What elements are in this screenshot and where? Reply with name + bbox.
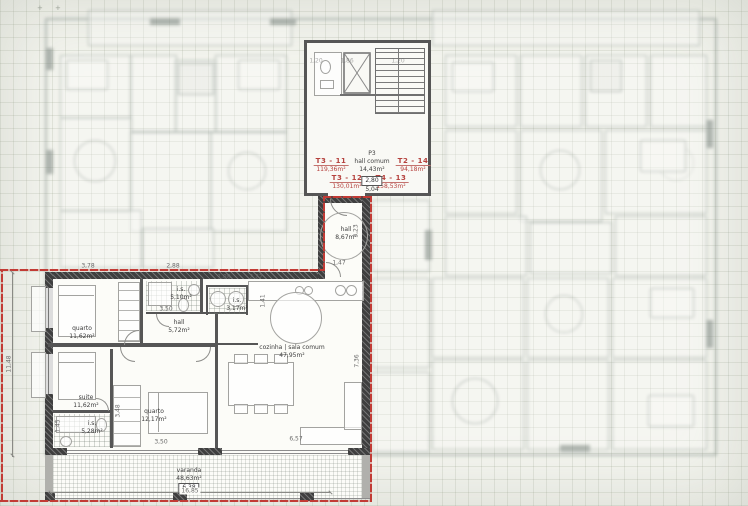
room-label-is-3: i.s. 5,28m² bbox=[81, 420, 103, 436]
unit-boundary-left bbox=[1, 269, 3, 502]
room-name: varanda bbox=[176, 467, 201, 475]
dimension-label: 1,86 bbox=[340, 58, 353, 65]
dimension-label: 2,27 bbox=[249, 274, 262, 281]
dimension-label: 1,41 bbox=[260, 294, 267, 307]
sink-icon bbox=[320, 80, 334, 89]
dimension-label: 1,88 bbox=[217, 274, 230, 281]
room-name: i.s. bbox=[226, 297, 248, 305]
sink-icon bbox=[335, 285, 346, 296]
dimension-label: 3,50 bbox=[154, 439, 167, 446]
window-sill bbox=[31, 286, 46, 332]
room-label-hall: hall 5,72m² bbox=[168, 319, 190, 335]
room-area: 11,62m² bbox=[73, 402, 98, 410]
common-hall-name: hall comum bbox=[354, 158, 389, 166]
common-hall-area: 14,43m² bbox=[354, 166, 389, 174]
dimension-label: 3,50 bbox=[159, 306, 172, 313]
dining-table-icon bbox=[228, 362, 294, 406]
room-label-is-1: i.s. 5,10m² bbox=[170, 286, 192, 302]
chair-icon bbox=[234, 404, 248, 414]
chair-icon bbox=[274, 404, 288, 414]
sofa-icon bbox=[344, 382, 362, 430]
room-area: 47,95m² bbox=[259, 352, 324, 360]
unit-boundary-step bbox=[323, 196, 325, 271]
room-name: suite bbox=[73, 394, 98, 402]
unit-area: 94,18m² bbox=[396, 166, 431, 173]
washing-machine-icon bbox=[210, 291, 226, 307]
unit-boundary-top bbox=[0, 269, 325, 271]
round-table-icon bbox=[270, 292, 322, 344]
floorplan-canvas: + + bbox=[0, 0, 748, 506]
room-area: 48,63m² bbox=[176, 475, 201, 483]
window-sill bbox=[31, 352, 46, 398]
dimension-label: 3,23 bbox=[353, 224, 360, 237]
dimension-label: 1,20 bbox=[309, 58, 322, 65]
level-marker: 2,80 bbox=[361, 176, 382, 186]
room-name: i.s. bbox=[81, 420, 103, 428]
unit-area: 130,01m² bbox=[330, 183, 365, 190]
sink-icon bbox=[60, 436, 72, 447]
room-area: 5,10m² bbox=[170, 294, 192, 302]
balcony-floor bbox=[45, 455, 370, 500]
unit-area: 119,36m² bbox=[314, 166, 349, 173]
dimension-label: 1,45 bbox=[55, 419, 62, 432]
dimension-label: 6,57 bbox=[289, 436, 302, 443]
room-area: 11,62m² bbox=[69, 333, 94, 341]
common-hall-label: P3 hall comum 14,43m² bbox=[354, 150, 389, 173]
dimension-label: 11,48 bbox=[6, 355, 13, 372]
unit-tag-t3-11: T3 - 11 119,36m² bbox=[314, 157, 349, 173]
unit-boundary-step-top bbox=[323, 196, 372, 198]
room-label-quarto-2: quarto 12,17m² bbox=[141, 408, 166, 424]
common-hall-id: P3 bbox=[354, 150, 389, 158]
room-label-living: cozinha | sala comum 47,95m² bbox=[259, 344, 324, 360]
unit-boundary-right bbox=[370, 196, 372, 502]
room-name: quarto bbox=[141, 408, 166, 416]
room-area: 5,28m² bbox=[81, 428, 103, 436]
chair-icon bbox=[234, 354, 248, 364]
dimension-label: 1,47 bbox=[332, 260, 345, 267]
common-hall-dim: 5,04 bbox=[361, 186, 382, 194]
room-name: i.s. bbox=[170, 286, 192, 294]
bed-icon bbox=[58, 352, 96, 400]
unit-id: T3 - 12 bbox=[330, 174, 365, 183]
room-area: 3,17m² bbox=[226, 305, 248, 313]
dimension-label: 2,88 bbox=[166, 263, 179, 270]
unit-tag-t2-14: T2 - 14 94,18m² bbox=[396, 157, 431, 173]
common-hall-level: 2,80 5,04 bbox=[361, 176, 382, 194]
dimension-label: 1,20 bbox=[391, 58, 404, 65]
dimension-label: 3,78 bbox=[81, 263, 94, 270]
room-name: cozinha | sala comum bbox=[259, 344, 324, 352]
room-area: 5,72m² bbox=[168, 327, 190, 335]
unit-id: T2 - 14 bbox=[396, 157, 431, 166]
room-name: hall bbox=[168, 319, 190, 327]
dimension-label: 7,36 bbox=[354, 354, 361, 367]
dimension-label: 3,48 bbox=[115, 404, 122, 417]
unit-id: T3 - 11 bbox=[314, 157, 349, 166]
room-label-is-2: i.s. 3,17m² bbox=[226, 297, 248, 313]
shower-icon bbox=[148, 282, 172, 306]
dimension-label: 16,85 bbox=[179, 488, 200, 495]
room-label-suite: suite 11,62m² bbox=[73, 394, 98, 410]
chair-icon bbox=[254, 404, 268, 414]
sink-icon bbox=[346, 285, 357, 296]
room-label-quarto-1: quarto 11,62m² bbox=[69, 325, 94, 341]
room-area: 12,17m² bbox=[141, 416, 166, 424]
room-name: quarto bbox=[69, 325, 94, 333]
unit-boundary-bottom bbox=[0, 500, 372, 502]
unit-tag-t3-12: T3 - 12 130,01m² bbox=[330, 174, 365, 190]
